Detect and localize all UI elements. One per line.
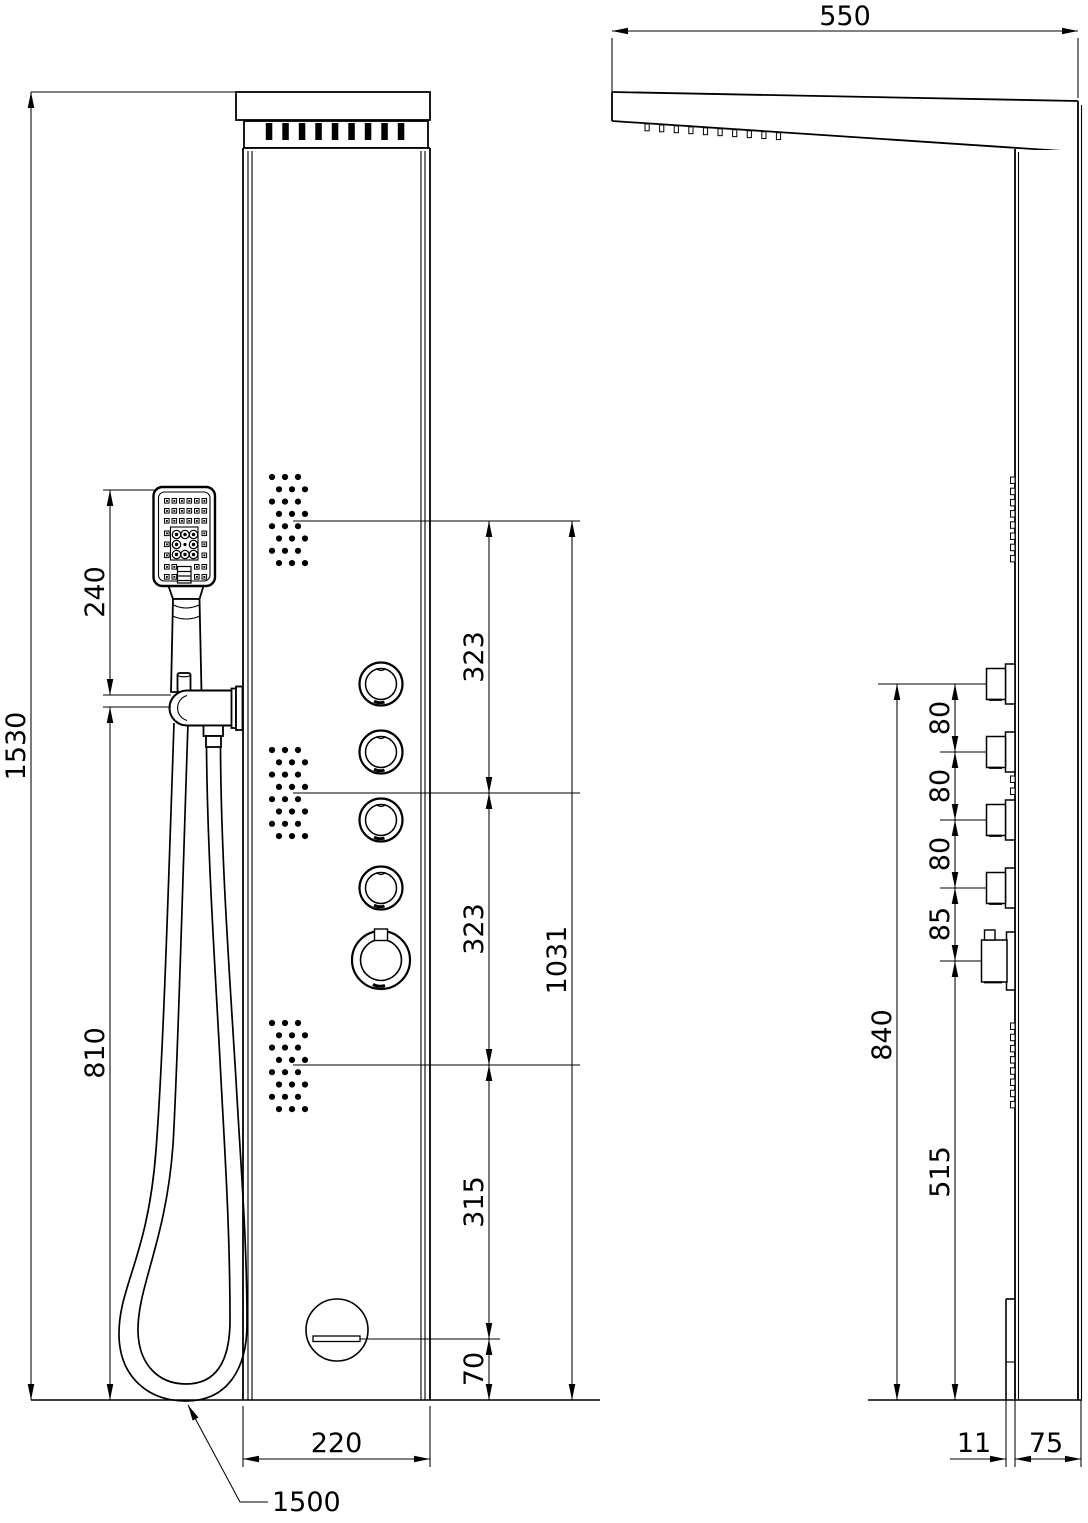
shower-hose-inner [138, 723, 230, 1384]
dim-knob-gap-3: 80 [925, 837, 956, 871]
rain-head-side [612, 92, 1078, 152]
dim-panel-width: 220 [311, 1428, 363, 1459]
dim-upper-jet-spacing: 323 [459, 631, 490, 683]
holder-peg [178, 673, 191, 692]
panel-body-side [1015, 150, 1081, 1400]
top-nozzles-front [266, 123, 405, 140]
dim-jet-to-spout: 315 [459, 1176, 490, 1228]
dim-knob-gap-2: 80 [925, 769, 956, 803]
hose-length-leader [188, 1405, 268, 1502]
hose-nut [206, 736, 221, 747]
spout-slot [313, 1336, 360, 1342]
shower-panel-technical-drawing: 1530 240 810 323 323 1031 315 70 220 150… [0, 0, 1088, 1523]
panel-side [1011, 101, 1082, 1400]
handshower-neck [169, 586, 204, 599]
dim-holder-height: 810 [80, 1027, 111, 1079]
panel-top-cap [236, 92, 430, 120]
side-view: 550 80 80 80 85 840 515 11 75 [612, 1, 1082, 1467]
hose-connector [204, 726, 224, 737]
spout-side [1006, 1299, 1015, 1400]
front-view: 1530 240 810 323 323 1031 315 70 220 150… [1, 92, 600, 1518]
holder-plate [236, 687, 243, 731]
dim-total-height: 1530 [1, 712, 32, 781]
dim-knob-gap-1: 80 [925, 701, 956, 735]
dim-spout-projection: 11 [957, 1428, 991, 1459]
dim-mixer-height: 515 [925, 1146, 956, 1198]
dim-jet-span: 1031 [542, 926, 573, 995]
dim-hose-length: 1500 [272, 1487, 341, 1518]
drawing-canvas: 1530 240 810 323 323 1031 315 70 220 150… [0, 0, 1088, 1523]
control-knobs-side [982, 664, 1016, 990]
dim-knob-gap-4: 85 [925, 907, 956, 941]
dim-head-projection: 550 [819, 1, 871, 32]
handshower-holder [170, 691, 233, 726]
dim-panel-depth: 75 [1029, 1428, 1063, 1459]
dim-spout-height: 70 [459, 1352, 490, 1386]
dim-middle-jet-spacing: 323 [459, 903, 490, 955]
shower-hose-outer [119, 723, 247, 1401]
dim-controls-height: 840 [867, 1009, 898, 1061]
dim-handshower-length: 240 [80, 566, 111, 618]
hand-shower [119, 487, 247, 1401]
